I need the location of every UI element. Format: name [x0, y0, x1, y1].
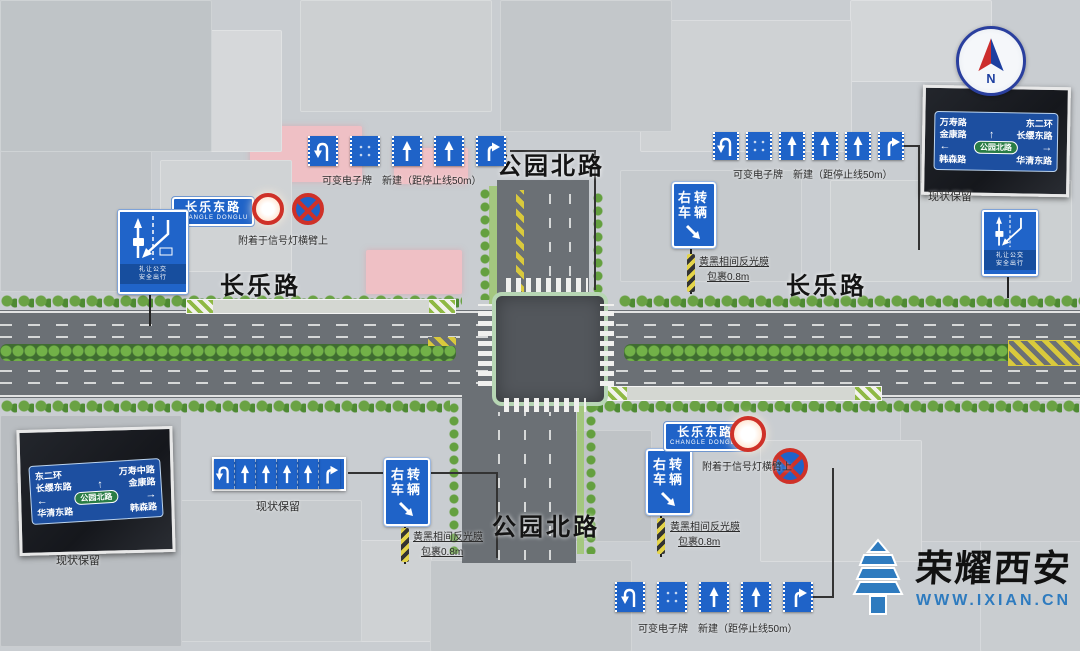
lane-sign-straight-arrow — [298, 459, 319, 489]
lane-sign-straight-arrow — [277, 459, 298, 489]
left-arrow-icon: ← — [36, 495, 48, 506]
lane-sign-blank-variable — [657, 582, 687, 612]
right-turn-sign-north-east: 右转 车辆 — [672, 182, 716, 248]
lane-sign-uturn-left-arrow — [308, 136, 338, 166]
prohibition-sign-icon — [252, 193, 284, 225]
lane-sign-right-arrow — [319, 459, 340, 489]
bus-lane-sign-west: 礼让公交 安全出行 — [118, 210, 188, 294]
connector-line — [918, 145, 920, 250]
right-turn-sign-south-west: 右转 车辆 — [384, 458, 430, 526]
sign-pole — [149, 290, 151, 326]
guide-road-name: 东二环 — [35, 469, 63, 483]
photo-texture-block — [300, 0, 492, 112]
guide-road-name: 华清东路 — [1016, 154, 1052, 167]
pole-reflective-wrap — [657, 518, 665, 554]
lane-sign-uturn-left-arrow — [214, 459, 235, 489]
right-turn-text: 右转 — [678, 190, 710, 205]
cluster-caption: 可变电子牌 新建（距停止线50m） — [322, 172, 481, 187]
bus-sign-text-line: 礼让公交 — [120, 266, 186, 274]
lane-sign-uturn-left-arrow — [615, 582, 645, 612]
guide-center-road: 公园北路 — [974, 140, 1018, 154]
down-right-arrow-icon — [397, 500, 417, 518]
guide-sign-photo-south-west: 东二环万寿中路 长缨东路↑金康路 ←公园北路→ 华清东路韩森路 — [16, 426, 175, 556]
guide-road-name: 华清东路 — [37, 505, 74, 519]
pole-caption: 黄黑相间反光膜 — [699, 253, 769, 268]
pole-caption: 包裹0.8m — [421, 543, 463, 558]
photo-texture-block — [180, 500, 362, 642]
lane-sign-blank-variable — [746, 132, 772, 160]
tree-column — [479, 188, 491, 300]
prohibition-sign-icon — [730, 416, 766, 452]
lane-sign-cluster-bottom-center — [615, 582, 813, 612]
pole-reflective-wrap — [401, 528, 409, 562]
guide-road-name: 金康路 — [128, 475, 156, 489]
street-plate-en: CHANGLE DONGLU — [670, 439, 740, 447]
bus-sign-text-line: 礼让公交 — [984, 252, 1036, 260]
lane-sign-straight-arrow — [256, 459, 277, 489]
bus-sign-text: 礼让公交 安全出行 — [120, 264, 186, 284]
right-arrow-icon: → — [145, 488, 157, 499]
lane-sign-straight-arrow — [779, 132, 805, 160]
bus-platform-north — [186, 299, 456, 314]
up-arrow-icon: ↑ — [989, 129, 995, 139]
plate-caption: 附着于信号灯横臂上 — [238, 232, 328, 247]
median-tree-strip — [0, 344, 456, 361]
platform-hatch-end — [187, 300, 213, 313]
compass-n-label: N — [986, 72, 995, 86]
pole-reflective-wrap — [687, 254, 695, 292]
pole-caption: 包裹0.8m — [678, 533, 720, 548]
photo-texture-block — [430, 560, 632, 651]
tree-row — [0, 398, 450, 416]
lane-sign-right-arrow — [783, 582, 813, 612]
connector-line — [832, 468, 834, 598]
watermark-brand: 荣耀西安 — [914, 538, 1074, 592]
bus-platform-south — [600, 386, 882, 401]
guide-center-road: 公园北路 — [74, 489, 119, 505]
guide-sign: 东二环万寿中路 长缨东路↑金康路 ←公园北路→ 华清东路韩森路 — [28, 458, 163, 525]
bus-sign-text-line: 安全出行 — [984, 260, 1036, 268]
guide-sign-photo-north-east: 万寿路东二环 金康路↑长缨东路 ←公园北路→ 韩森路华清东路 — [921, 85, 1071, 198]
lane-sign-cluster-top-right — [713, 132, 904, 160]
lane-sign-cluster-top-left — [308, 136, 506, 166]
right-arrow-icon: → — [1041, 143, 1052, 153]
compass-arrow-icon: N — [964, 34, 1018, 88]
lane-sign-panel-bottom-left — [212, 457, 346, 491]
right-turn-text: 车辆 — [653, 472, 685, 487]
watermark: 荣耀西安 WWW.IXIAN.CN — [850, 538, 1072, 616]
lane-sign-straight-arrow — [812, 132, 838, 160]
guide-road-name: 韩森路 — [130, 500, 158, 514]
lane-sign-right-arrow — [878, 132, 904, 160]
aerial-plan-canvas: 公园北路 公园北路 长乐路 长乐路 可变电子牌 新建（距停止线50m） 可变电子… — [0, 0, 1080, 651]
guide-road-name: 金康路 — [940, 128, 967, 140]
highlighted-building-block — [366, 250, 462, 294]
watermark-site: WWW.IXIAN.CN — [916, 592, 1072, 610]
crosswalk-north — [506, 278, 588, 292]
lane-sign-straight-arrow — [434, 136, 464, 166]
bus-lane-diagram-icon — [124, 212, 182, 264]
panel-caption: 现状保留 — [256, 498, 300, 514]
bus-sign-text-line: 安全出行 — [120, 274, 186, 282]
yellow-hatch-median-tip — [428, 337, 456, 346]
photo-caption: 现状保留 — [928, 188, 972, 204]
no-stopping-sign-icon — [292, 193, 324, 225]
plate-caption: 附着于信号灯横臂上 — [702, 458, 792, 473]
lane-sign-right-arrow — [476, 136, 506, 166]
north-compass-icon: N — [956, 26, 1026, 96]
intersection-box — [492, 292, 608, 406]
label-changle-road-left: 长乐路 — [220, 266, 301, 301]
label-park-north-road-top: 公园北路 — [497, 146, 605, 181]
photo-texture-block — [900, 400, 1080, 542]
street-plate-en: CHANGLE DONGLU — [178, 214, 248, 222]
photo-texture-block — [0, 0, 212, 152]
pole-caption: 黄黑相间反光膜 — [413, 528, 483, 543]
street-plate-cn: 长乐东路 — [178, 201, 248, 214]
pole-caption: 黄黑相间反光膜 — [670, 518, 740, 533]
right-turn-text: 右转 — [653, 457, 685, 472]
cluster-caption: 可变电子牌 新建（距停止线50m） — [638, 620, 797, 635]
crosswalk-east — [600, 304, 614, 386]
bus-sign-text: 礼让公交 安全出行 — [984, 250, 1036, 270]
label-changle-road-right: 长乐路 — [786, 266, 867, 301]
cluster-caption: 可变电子牌 新建（距停止线50m） — [733, 166, 892, 181]
left-arrow-icon: ← — [939, 141, 950, 151]
guide-road-name: 长缨东路 — [35, 480, 72, 494]
lane-sign-straight-arrow — [235, 459, 256, 489]
right-turn-text: 右转 — [391, 467, 423, 482]
down-right-arrow-icon — [684, 223, 704, 241]
photo-caption: 现状保留 — [56, 552, 100, 568]
platform-hatch-end — [855, 387, 881, 400]
bus-lane-diagram-icon — [988, 212, 1032, 250]
yellow-hatch-median-end — [1008, 340, 1080, 366]
pagoda-logo-icon — [850, 538, 906, 616]
guide-road-name: 东二环 — [1026, 117, 1053, 129]
platform-hatch-end — [429, 300, 455, 313]
lane-sign-straight-arrow — [392, 136, 422, 166]
right-turn-text: 车辆 — [678, 205, 710, 220]
down-right-arrow-icon — [659, 490, 679, 508]
guide-road-name: 万寿路 — [940, 116, 967, 128]
lane-sign-straight-arrow — [699, 582, 729, 612]
right-turn-sign-south-east: 右转 车辆 — [646, 449, 692, 515]
guide-sign: 万寿路东二环 金康路↑长缨东路 ←公园北路→ 韩森路华清东路 — [933, 110, 1059, 171]
right-turn-text: 车辆 — [391, 482, 423, 497]
lane-sign-straight-arrow — [845, 132, 871, 160]
pole-caption: 包裹0.8m — [707, 268, 749, 283]
guide-road-name: 韩森路 — [939, 153, 966, 165]
photo-texture-block — [500, 0, 672, 132]
label-park-north-road-bottom: 公园北路 — [492, 507, 600, 542]
bus-lane-sign-east: 礼让公交 安全出行 — [982, 210, 1038, 276]
up-arrow-icon: ↑ — [97, 479, 103, 489]
guide-road-name: 长缨东路 — [1016, 129, 1052, 142]
lane-sign-straight-arrow — [741, 582, 771, 612]
crosswalk-west — [478, 304, 492, 386]
lane-sign-blank-variable — [350, 136, 380, 166]
lane-sign-uturn-left-arrow — [713, 132, 739, 160]
crosswalk-south — [504, 398, 586, 412]
